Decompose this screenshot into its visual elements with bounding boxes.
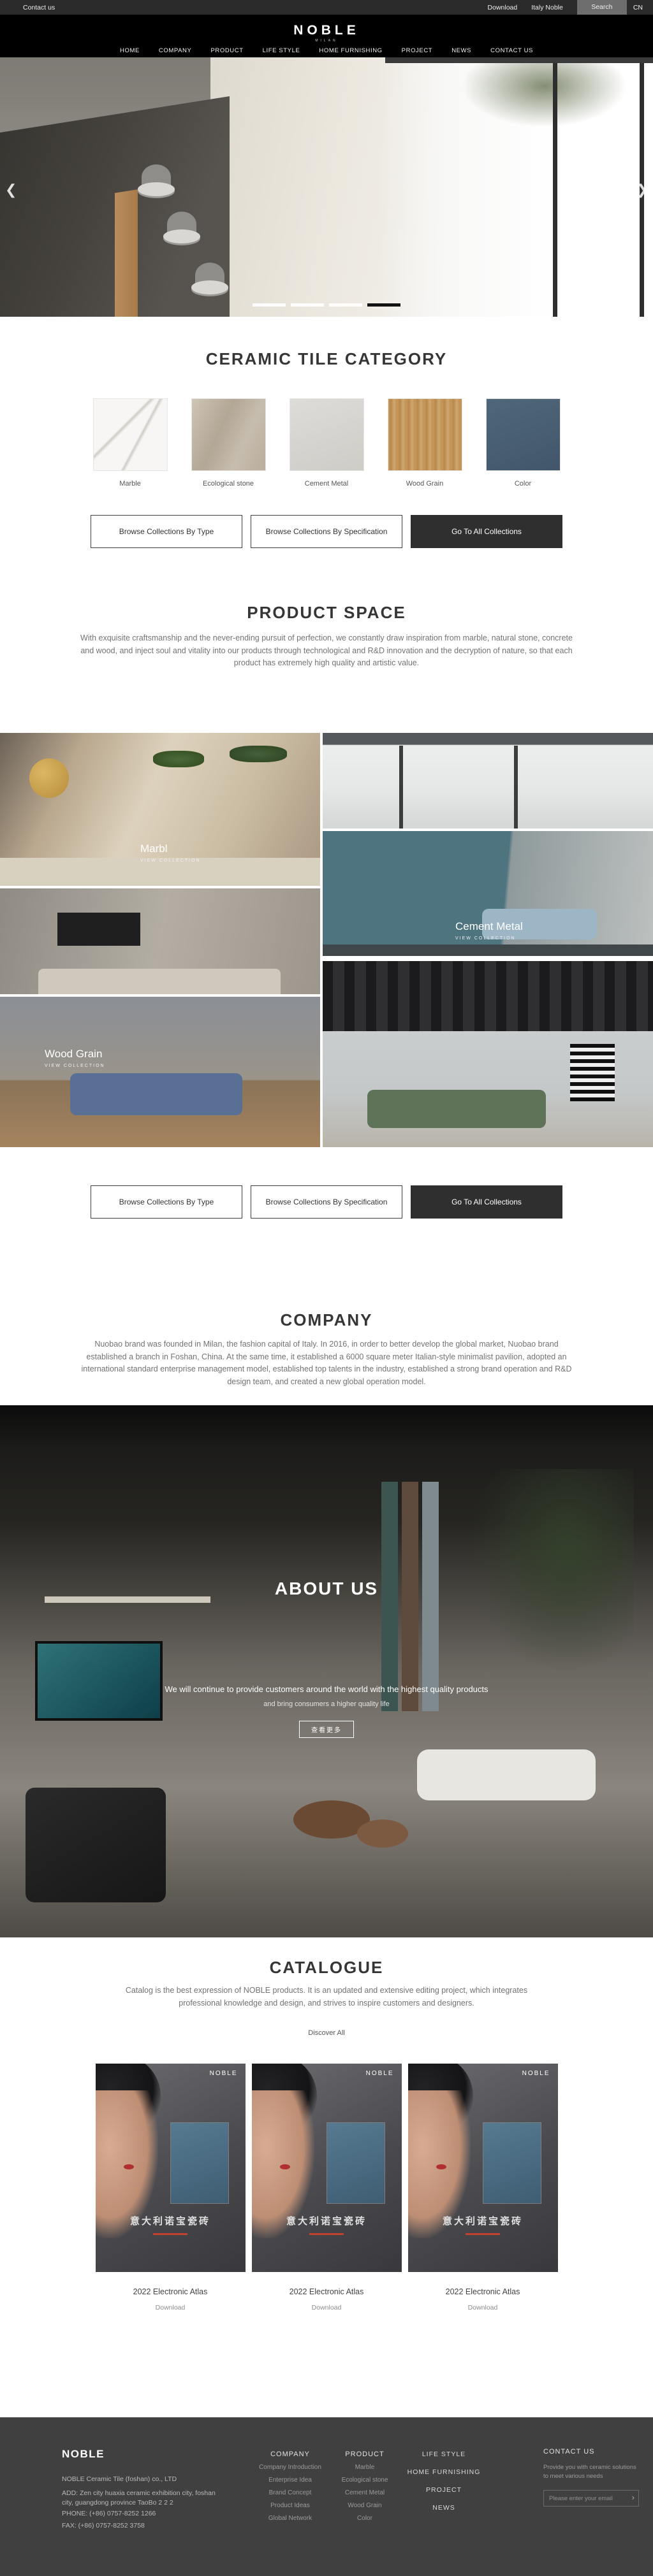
top-utility-bar: Contact us Download Italy Noble Search C… [0,0,653,15]
about-line-2: and bring consumers a higher quality lif… [0,1700,653,1708]
cover-red-bar [309,2233,344,2235]
nav-contact-us[interactable]: CONTACT US [490,47,533,54]
cover-tile-swatch [483,2122,541,2204]
category-marble[interactable]: Marble [93,398,168,488]
carousel-next-icon[interactable]: ❯ [636,182,648,198]
download-link[interactable]: Download [408,2304,558,2312]
browse-by-specification-button[interactable]: Browse Collections By Specification [251,1185,402,1219]
product-space-gallery: Marbl VIEW COLLECTION Wood Grain VIEW CO… [0,733,653,1147]
carousel-prev-icon[interactable]: ❮ [5,182,17,198]
search-button[interactable]: Search [577,0,627,15]
footer-link-project[interactable]: PROJECT [399,2486,488,2494]
category-label: Ecological stone [191,480,266,488]
cover-lips [436,2164,446,2169]
company-section-title: COMPANY [0,1310,653,1330]
footer-link[interactable]: Brand Concept [247,2489,333,2496]
cover-brand: NOBLE [366,2070,394,2077]
footer-fax: FAX: (+86) 0757-8252 3758 [62,2521,228,2531]
atlas-cover-image[interactable]: NOBLE 意大利诺宝瓷砖 [408,2064,558,2272]
space-tile-wood-grain[interactable]: Wood Grain VIEW COLLECTION [0,997,320,1147]
send-icon[interactable]: › [632,2493,635,2502]
atlas-title: 2022 Electronic Atlas [96,2287,246,2296]
tile-tv [57,913,140,946]
footer-contact-blurb: Provide you with ceramic solutions to me… [543,2463,639,2481]
tile-label-block: Cement Metal VIEW COLLECTION [455,920,523,941]
footer-address: ADD: Zen city huaxia ceramic exhibition … [62,2489,228,2508]
cover-lips [280,2164,290,2169]
category-label: Color [486,480,561,488]
footer-col-title[interactable]: COMPANY [247,2450,333,2458]
footer-link[interactable]: Wood Grain [334,2502,395,2509]
browse-by-type-button[interactable]: Browse Collections By Type [91,1185,242,1219]
footer-link[interactable]: Marble [334,2464,395,2471]
footer-link[interactable]: Product Ideas [247,2502,333,2509]
carousel-indicators [253,303,400,307]
tile-sublabel: VIEW COLLECTION [45,1064,105,1068]
space-tile-exterior[interactable] [323,733,653,829]
space-tile-cement-metal[interactable]: Cement Metal VIEW COLLECTION [323,831,653,956]
footer-link[interactable]: Enterprise Idea [247,2477,333,2484]
space-tile-marble[interactable]: Marbl VIEW COLLECTION [0,733,320,886]
category-label: Cement Metal [290,480,364,488]
browse-by-specification-button[interactable]: Browse Collections By Specification [251,515,402,548]
cement-metal-swatch-image [290,398,364,471]
catalogue-cards: NOBLE 意大利诺宝瓷砖 2022 Electronic Atlas Down… [0,2064,653,2312]
tile-label-block: Marbl VIEW COLLECTION [140,843,201,863]
cover-tile-swatch [326,2122,385,2204]
about-us-section: ABOUT US We will continue to provide cus… [0,1405,653,1937]
tile-sublabel: VIEW COLLECTION [140,858,201,863]
cover-title: 意大利诺宝瓷砖 [96,2214,246,2227]
download-link[interactable]: Download [488,4,518,11]
hero-image-window-frame [553,57,557,317]
footer-col-company: COMPANY Company Introduction Enterprise … [247,2450,333,2522]
tile-plant [230,746,287,762]
cover-lips [124,2164,134,2169]
catalogue-card: NOBLE 意大利诺宝瓷砖 2022 Electronic Atlas Down… [96,2064,246,2312]
cover-red-bar [466,2233,500,2235]
about-image-tv [35,1641,163,1721]
ecological-stone-swatch-image [191,398,266,471]
about-image-armchair [26,1788,166,1902]
category-label: Wood Grain [388,480,462,488]
tile-sofa [367,1090,546,1128]
about-image-sofa [417,1749,596,1800]
carousel-dot-4-active[interactable] [367,303,400,307]
category-label: Marble [93,480,168,488]
collection-buttons-secondary: Browse Collections By Type Browse Collec… [0,1185,653,1219]
nav-news[interactable]: NEWS [451,47,471,54]
about-image-plant [468,1469,634,1673]
site-footer: NOBLE NOBLE Ceramic Tile (foshan) co., L… [0,2417,653,2576]
nav-home-furnishing[interactable]: HOME FURNISHING [319,47,382,54]
page: Contact us Download Italy Noble Search C… [0,0,653,2576]
tile-sofa [38,969,281,994]
tile-sublabel: VIEW COLLECTION [455,936,523,941]
italy-noble-link[interactable]: Italy Noble [531,4,563,11]
cover-title: 意大利诺宝瓷砖 [252,2214,402,2227]
space-tile-grey-lounge[interactable] [0,888,320,994]
footer-company-line: NOBLE Ceramic Tile (foshan) co., LTD [62,2475,228,2484]
footer-link-life-style[interactable]: LIFE STYLE [399,2450,488,2458]
tile-label: Cement Metal [455,920,523,933]
catalogue-description: Catalog is the best expression of NOBLE … [110,1985,543,2009]
category-wood-grain[interactable]: Wood Grain [388,398,462,488]
category-swatches: Marble Ecological stone Cement Metal Woo… [0,398,653,488]
collection-buttons: Browse Collections By Type Browse Collec… [0,515,653,548]
hero-image-greenery [462,57,627,127]
cover-tile-swatch [170,2122,229,2204]
cover-brand: NOBLE [522,2070,550,2077]
product-space-title: PRODUCT SPACE [0,603,653,623]
atlas-title: 2022 Electronic Atlas [408,2287,558,2296]
brand-logo[interactable]: NOBLE [0,15,653,38]
footer-link-home-furnishing[interactable]: HOME FURNISHING [399,2468,488,2476]
footer-contact-title[interactable]: CONTACT US [543,2448,639,2456]
footer-brand-logo: NOBLE [62,2448,105,2461]
category-section-title: CERAMIC TILE CATEGORY [0,349,653,369]
email-input[interactable] [543,2490,639,2507]
site-header: NOBLE MILAN HOME COMPANY PRODUCT LIFE ST… [0,15,653,57]
cover-title: 意大利诺宝瓷砖 [408,2214,558,2227]
space-tile-slat-lounge[interactable] [323,961,653,1147]
carousel-dot-2[interactable] [291,303,324,307]
footer-col-title[interactable]: PRODUCT [334,2450,395,2458]
tile-label: Wood Grain [45,1048,105,1060]
tile-window-frame [399,746,403,829]
discover-all-link[interactable]: Discover All [0,2029,653,2037]
company-description: Nuobao brand was founded in Milan, the f… [78,1338,575,1388]
footer-phone: PHONE: (+86) 0757-8252 1266 [62,2509,228,2519]
tile-striped-art [570,1044,615,1101]
hero-carousel: ❮ ❯ [0,57,653,317]
footer-link[interactable]: Cement Metal [334,2489,395,2496]
footer-link[interactable]: Color [334,2515,395,2522]
footer-link[interactable]: Company Introduction [247,2464,333,2471]
atlas-title: 2022 Electronic Atlas [252,2287,402,2296]
cover-brand: NOBLE [210,2070,238,2077]
hero-image-stool [191,280,228,294]
product-space-description: With exquisite craftsmanship and the nev… [75,632,578,670]
about-line-1: We will continue to provide customers ar… [0,1684,653,1694]
go-to-all-collections-button[interactable]: Go To All Collections [411,515,562,548]
footer-link[interactable]: Global Network [247,2515,333,2522]
footer-col-product: PRODUCT Marble Ecological stone Cement M… [334,2450,395,2522]
about-image-table [357,1820,408,1848]
catalogue-card: NOBLE 意大利诺宝瓷砖 2022 Electronic Atlas Down… [408,2064,558,2312]
tile-slat-ceiling [323,961,653,1031]
atlas-cover-image[interactable]: NOBLE 意大利诺宝瓷砖 [96,2064,246,2272]
download-link[interactable]: Download [252,2304,402,2312]
tile-window-frame [514,746,518,829]
hero-image-wood-base [115,189,138,317]
hero-image-stool [163,229,200,243]
tile-label-block: Wood Grain VIEW COLLECTION [45,1048,105,1068]
go-to-all-collections-button[interactable]: Go To All Collections [411,1185,562,1219]
footer-link-news[interactable]: NEWS [399,2504,488,2512]
footer-col-links: LIFE STYLE HOME FURNISHING PROJECT NEWS [399,2450,488,2512]
category-color[interactable]: Color [486,398,561,488]
language-switch[interactable]: CN [633,4,643,11]
about-more-button[interactable]: 查看更多 [299,1721,354,1738]
tile-art-circle [29,758,69,798]
hero-image-window-frame [385,57,653,63]
contact-us-link[interactable]: Contact us [23,4,55,11]
catalogue-section-title: CATALOGUE [0,1958,653,1978]
nav-home[interactable]: HOME [120,47,140,54]
download-link[interactable]: Download [96,2304,246,2312]
cover-red-bar [153,2233,187,2235]
brand-logo-subtitle: MILAN [0,39,653,43]
carousel-dot-1[interactable] [253,303,286,307]
tile-floor [323,944,653,956]
category-cement-metal[interactable]: Cement Metal [290,398,364,488]
marble-swatch-image [93,398,168,471]
tile-plant [153,751,204,767]
category-ecological-stone[interactable]: Ecological stone [191,398,266,488]
color-swatch-image [486,398,561,471]
footer-contact-block: CONTACT US Provide you with ceramic solu… [543,2448,639,2507]
nav-life-style[interactable]: LIFE STYLE [263,47,300,54]
wood-grain-swatch-image [388,398,462,471]
nav-product[interactable]: PRODUCT [210,47,243,54]
tile-label: Marbl [140,843,201,855]
footer-link[interactable]: Ecological stone [334,2477,395,2484]
about-image-ceiling [0,1405,653,1450]
hero-image-stool [138,182,175,196]
main-nav: HOME COMPANY PRODUCT LIFE STYLE HOME FUR… [0,47,653,54]
tile-sofa [70,1073,242,1115]
carousel-dot-3[interactable] [329,303,362,307]
nav-project[interactable]: PROJECT [402,47,433,54]
browse-by-type-button[interactable]: Browse Collections By Type [91,515,242,548]
atlas-cover-image[interactable]: NOBLE 意大利诺宝瓷砖 [252,2064,402,2272]
about-us-title: ABOUT US [0,1579,653,1599]
catalogue-card: NOBLE 意大利诺宝瓷砖 2022 Electronic Atlas Down… [252,2064,402,2312]
nav-company[interactable]: COMPANY [159,47,192,54]
